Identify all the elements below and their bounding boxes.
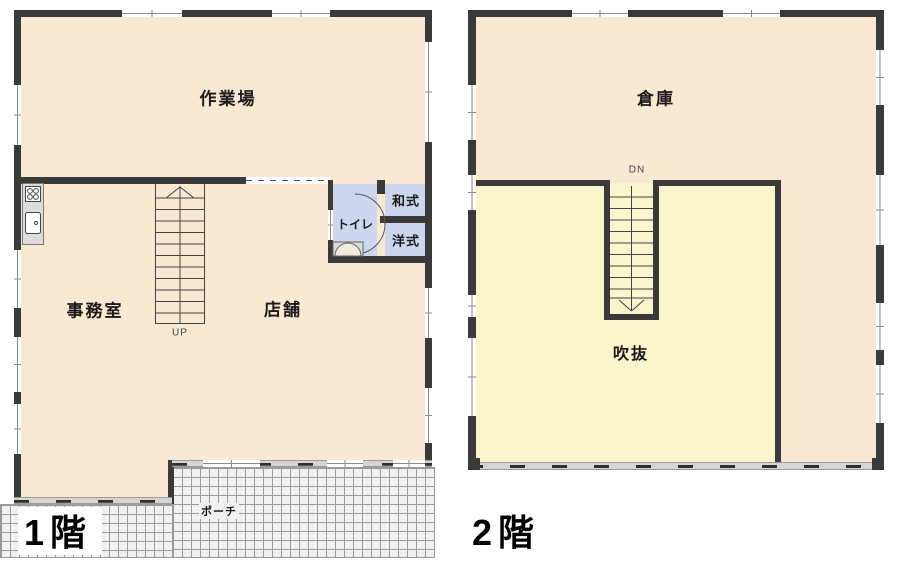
floor2-bottom-band <box>468 462 884 470</box>
sink-icon <box>25 212 41 234</box>
floor1-window-top-1 <box>122 10 182 17</box>
floor2-window-left-4 <box>468 338 476 416</box>
floor1-window-right-3 <box>425 388 432 443</box>
toilet-western-label: 洋式 <box>392 231 420 250</box>
floor2-window-left-3 <box>468 295 476 317</box>
floor1-window-right-1 <box>425 42 432 142</box>
floor1-stairs <box>155 184 205 324</box>
floor2-window-top-2 <box>723 10 780 17</box>
floor1-window-right-2 <box>425 288 432 338</box>
floor2-stairs <box>610 186 653 314</box>
floor2-warehouse-room <box>476 17 876 183</box>
floor1-window-left-2 <box>14 250 21 308</box>
floor2-wall-top <box>468 10 884 17</box>
floor1-window-left-1 <box>14 85 21 145</box>
stairs-dn-label: DN <box>629 165 645 176</box>
office-label: 事務室 <box>67 297 124 322</box>
floor2-window-right-4 <box>876 365 884 423</box>
floor1-title: 1階 <box>24 505 92 555</box>
floor1-office-band <box>14 497 172 504</box>
floor1-wall-top <box>14 10 432 17</box>
floorplan-canvas: 作業場 事務室 店舗 UP トイレ 和式 洋式 ポーチ 1階 <box>0 0 900 571</box>
floor2-window-right-2 <box>876 175 884 245</box>
floor2-window-right-1 <box>876 50 884 105</box>
floor1-window-left-3 <box>14 337 21 392</box>
stove-icon <box>25 186 41 202</box>
atrium-label: 吹抜 <box>613 340 649 364</box>
toilet-label: トイレ <box>337 216 373 233</box>
shop-label: 店舗 <box>264 296 302 321</box>
floor2-divider-right <box>659 180 781 186</box>
floor2-window-left-2 <box>468 175 476 210</box>
floor2-window-top-1 <box>572 10 628 17</box>
toilet-japanese-label: 和式 <box>392 191 420 210</box>
floor2-bottom-corner-left <box>468 458 480 470</box>
floor2-window-left-1 <box>468 85 476 140</box>
floor1-window-top-2 <box>272 10 330 17</box>
stairs-up-label: UP <box>172 328 188 339</box>
floor1-shopfront-window-1 <box>203 460 260 467</box>
floor1-shopfront-window-2 <box>327 460 363 467</box>
floor2-bottom-corner-right <box>872 458 884 470</box>
floor2-window-right-3 <box>876 303 884 350</box>
warehouse-label: 倉庫 <box>637 85 675 110</box>
floor2-stairwell-wall-bottom <box>604 314 659 320</box>
floor1-office-lower-room <box>21 463 172 498</box>
floor2-title: 2階 <box>472 505 540 555</box>
floor2-warehouse-strip <box>781 183 876 462</box>
floor1-divider-sliding-door <box>246 177 330 184</box>
floor2-divider-left <box>476 180 604 186</box>
workshop-label: 作業場 <box>200 85 257 110</box>
porch-label: ポーチ <box>199 503 239 519</box>
floor2-stairwell-wall-right <box>653 180 659 320</box>
floor2-wall-vertical <box>775 183 781 462</box>
floor1-window-left-4 <box>14 404 21 454</box>
floor1-shopfront-window-3 <box>393 460 425 467</box>
floor1-divider-wall <box>14 177 246 184</box>
